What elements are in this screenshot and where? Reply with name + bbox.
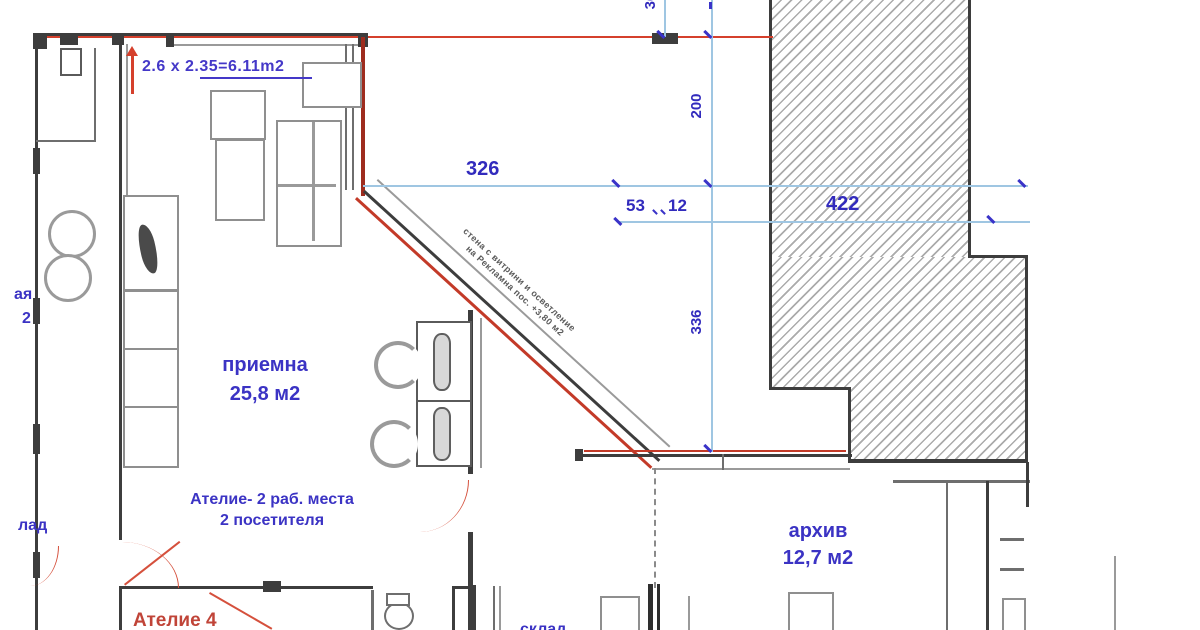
atelier-line1: Ателие- 2 раб. места (150, 489, 394, 510)
dim-line-horizontal-326 (363, 185, 1028, 187)
hatch-edge (968, 255, 1028, 258)
office-chair (370, 420, 418, 468)
wall-block (33, 298, 40, 324)
door-arc (420, 480, 469, 532)
wall-bottom-left (455, 586, 470, 589)
cabinet (210, 90, 266, 140)
hatch-edge (769, 387, 851, 390)
dim-label-422: 422 (826, 193, 859, 216)
wall-far-right (1114, 556, 1116, 630)
window-jamb (166, 33, 174, 47)
leader-arrow-head (126, 46, 138, 56)
dim-tick (660, 209, 666, 215)
door-leaf (209, 592, 272, 630)
wall-bottom-left (281, 586, 373, 589)
reception-area: 25,8 м2 (180, 380, 350, 409)
computer (433, 333, 451, 391)
wall-archive-top (893, 480, 1030, 483)
cut-label-left-3: лад (18, 517, 47, 535)
wall-archive (986, 481, 989, 630)
wc-wall (371, 590, 374, 630)
wall-edge (1026, 462, 1029, 507)
reception-name: приемна (180, 351, 350, 380)
wall-partition-2 (480, 318, 482, 468)
fixture (600, 596, 640, 630)
sofa-divider (312, 122, 315, 241)
cabinet (123, 348, 179, 410)
dim-tick (652, 209, 658, 215)
wall-line (688, 596, 690, 630)
door-arc (30, 546, 59, 586)
sofa-divider (278, 184, 336, 187)
hatch-edge (769, 0, 772, 390)
dim-label-326: 326 (466, 158, 499, 181)
archive-name: архив (748, 518, 888, 545)
dim-label-200: 200 (676, 86, 716, 126)
dim-label-53: 53 (626, 196, 645, 216)
duct (1002, 598, 1026, 630)
door-jamb (1000, 568, 1024, 571)
wall-left-inner (119, 44, 122, 540)
computer (433, 407, 451, 461)
column (648, 584, 653, 630)
area-calculation: 2.6 x 2.35=6.11m2 (142, 58, 284, 76)
toilet (384, 602, 414, 630)
closet (60, 48, 82, 76)
toilet-tank (386, 593, 410, 606)
wall-line (652, 468, 850, 470)
dim-mark (709, 2, 712, 9)
hatch-edge (1025, 255, 1028, 463)
office-chair (374, 341, 422, 389)
column (657, 584, 660, 630)
diagonal-annotation-line1: стена с витрини и осветление (461, 226, 578, 334)
fixture (788, 592, 834, 630)
wall-jamb (575, 449, 583, 461)
wall-diagonal (363, 190, 660, 462)
dim-label-12: 12 (668, 196, 687, 216)
cut-label-left-2: 2 (22, 310, 31, 328)
wall-block (60, 33, 78, 45)
wall-line (493, 586, 495, 630)
dim-label-36-clipped: 36 (635, 0, 665, 21)
door-jamb (1000, 538, 1024, 541)
wall-bottom-red (584, 450, 846, 452)
dim-line-horizontal-422 (618, 221, 1030, 223)
wall-bottom-hall (580, 454, 852, 457)
area-calculation-underline (200, 77, 312, 79)
cut-label-bottom: склад (520, 621, 566, 630)
dim-label-336: 336 (676, 302, 716, 342)
atelier-line2: 2 посетителя (150, 510, 394, 531)
leader-arrow (131, 54, 134, 94)
wall-stub (722, 454, 724, 470)
wall-block (33, 424, 40, 454)
hatch-edge (848, 387, 851, 462)
wall-left-inner (119, 588, 122, 630)
wall-partition (468, 532, 473, 590)
wall-left-outer (35, 33, 38, 630)
wall-archive (946, 481, 948, 630)
stair-line (94, 48, 96, 142)
room-label-atelier: Ателие- 2 раб. места 2 посетителя (150, 489, 394, 531)
wall-line (499, 586, 501, 630)
dashed-line (654, 468, 656, 588)
room-label-atelier4-clipped: Ателие 4 (133, 610, 217, 630)
hatch-edge (968, 0, 971, 257)
archive-area: 12,7 м2 (748, 545, 888, 572)
wall-partition-foot (468, 585, 476, 630)
cabinet (302, 62, 362, 108)
window-glazing (168, 44, 366, 46)
chair (48, 210, 96, 258)
table (215, 139, 265, 221)
hatch-edge (848, 459, 1028, 463)
cabinet (123, 406, 179, 468)
wall-block (33, 148, 40, 174)
wall-jamb (263, 581, 281, 592)
cut-label-left-1: ая (14, 286, 32, 304)
stair-line (36, 140, 94, 142)
wc-wall (452, 586, 455, 630)
wall-red-vertical (361, 37, 365, 196)
room-label-reception: приемна 25,8 м2 (180, 351, 350, 409)
floor-plan: стена с витрини и осветление на Рекламна… (0, 0, 1200, 630)
hatch-column-upper (770, 0, 970, 257)
chair (44, 254, 92, 302)
wall-block (112, 33, 124, 45)
room-label-archive: архив 12,7 м2 (748, 518, 888, 572)
cabinet (123, 290, 179, 352)
